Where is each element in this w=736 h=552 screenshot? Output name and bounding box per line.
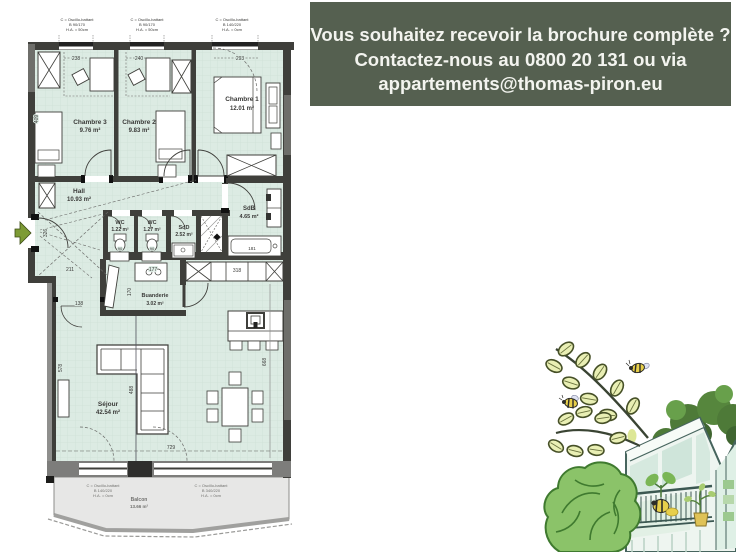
svg-text:211: 211	[66, 267, 74, 273]
svg-text:2.52 m²: 2.52 m²	[175, 232, 193, 238]
svg-text:Chambre 3: Chambre 3	[73, 119, 107, 126]
svg-text:3.02 m²: 3.02 m²	[146, 301, 164, 307]
svg-text:H.A. = 0cm: H.A. = 0cm	[201, 493, 222, 498]
svg-text:240: 240	[135, 56, 144, 62]
svg-text:138: 138	[75, 301, 84, 307]
svg-text:Séjour: Séjour	[98, 401, 119, 408]
svg-text:H.A. = 50cm: H.A. = 50cm	[66, 27, 89, 32]
svg-text:12.01 m²: 12.01 m²	[230, 105, 254, 112]
svg-text:H.A. = 50cm: H.A. = 50cm	[136, 27, 159, 32]
svg-text:90: 90	[118, 246, 123, 251]
svg-text:729: 729	[167, 445, 176, 451]
svg-text:318: 318	[233, 268, 242, 274]
svg-text:42.54 m²: 42.54 m²	[96, 409, 120, 416]
svg-text:Chambre 1: Chambre 1	[225, 96, 259, 103]
svg-text:H.A. = 0cm: H.A. = 0cm	[222, 27, 243, 32]
svg-text:578: 578	[58, 364, 64, 373]
svg-text:Chambre 2: Chambre 2	[122, 119, 156, 126]
svg-text:13.66 m²: 13.66 m²	[130, 504, 149, 509]
svg-text:326: 326	[43, 229, 49, 238]
svg-text:409: 409	[34, 115, 40, 124]
svg-text:SdD: SdD	[179, 225, 190, 231]
svg-text:238: 238	[72, 56, 81, 62]
svg-text:488: 488	[129, 386, 135, 395]
svg-text:Buanderie: Buanderie	[142, 293, 169, 299]
svg-text:181: 181	[248, 246, 256, 251]
svg-text:668: 668	[262, 358, 268, 367]
svg-text:H.A. = 0cm: H.A. = 0cm	[93, 493, 114, 498]
svg-text:Balcon: Balcon	[131, 497, 148, 503]
svg-text:Hall: Hall	[73, 188, 85, 195]
svg-text:4.65 m²: 4.65 m²	[240, 213, 259, 220]
svg-text:WC: WC	[147, 220, 156, 226]
svg-text:293: 293	[236, 56, 245, 62]
svg-text:9.76 m²: 9.76 m²	[80, 127, 101, 134]
svg-text:10.93 m²: 10.93 m²	[67, 196, 91, 203]
svg-text:177: 177	[149, 267, 158, 273]
svg-text:170: 170	[127, 288, 133, 297]
svg-text:90: 90	[150, 246, 155, 251]
svg-text:1.27 m²: 1.27 m²	[143, 227, 161, 233]
svg-text:SdB: SdB	[243, 206, 256, 212]
svg-text:WC: WC	[115, 220, 124, 226]
svg-text:9.83 m²: 9.83 m²	[129, 127, 150, 134]
svg-text:1.22 m²: 1.22 m²	[111, 227, 129, 233]
